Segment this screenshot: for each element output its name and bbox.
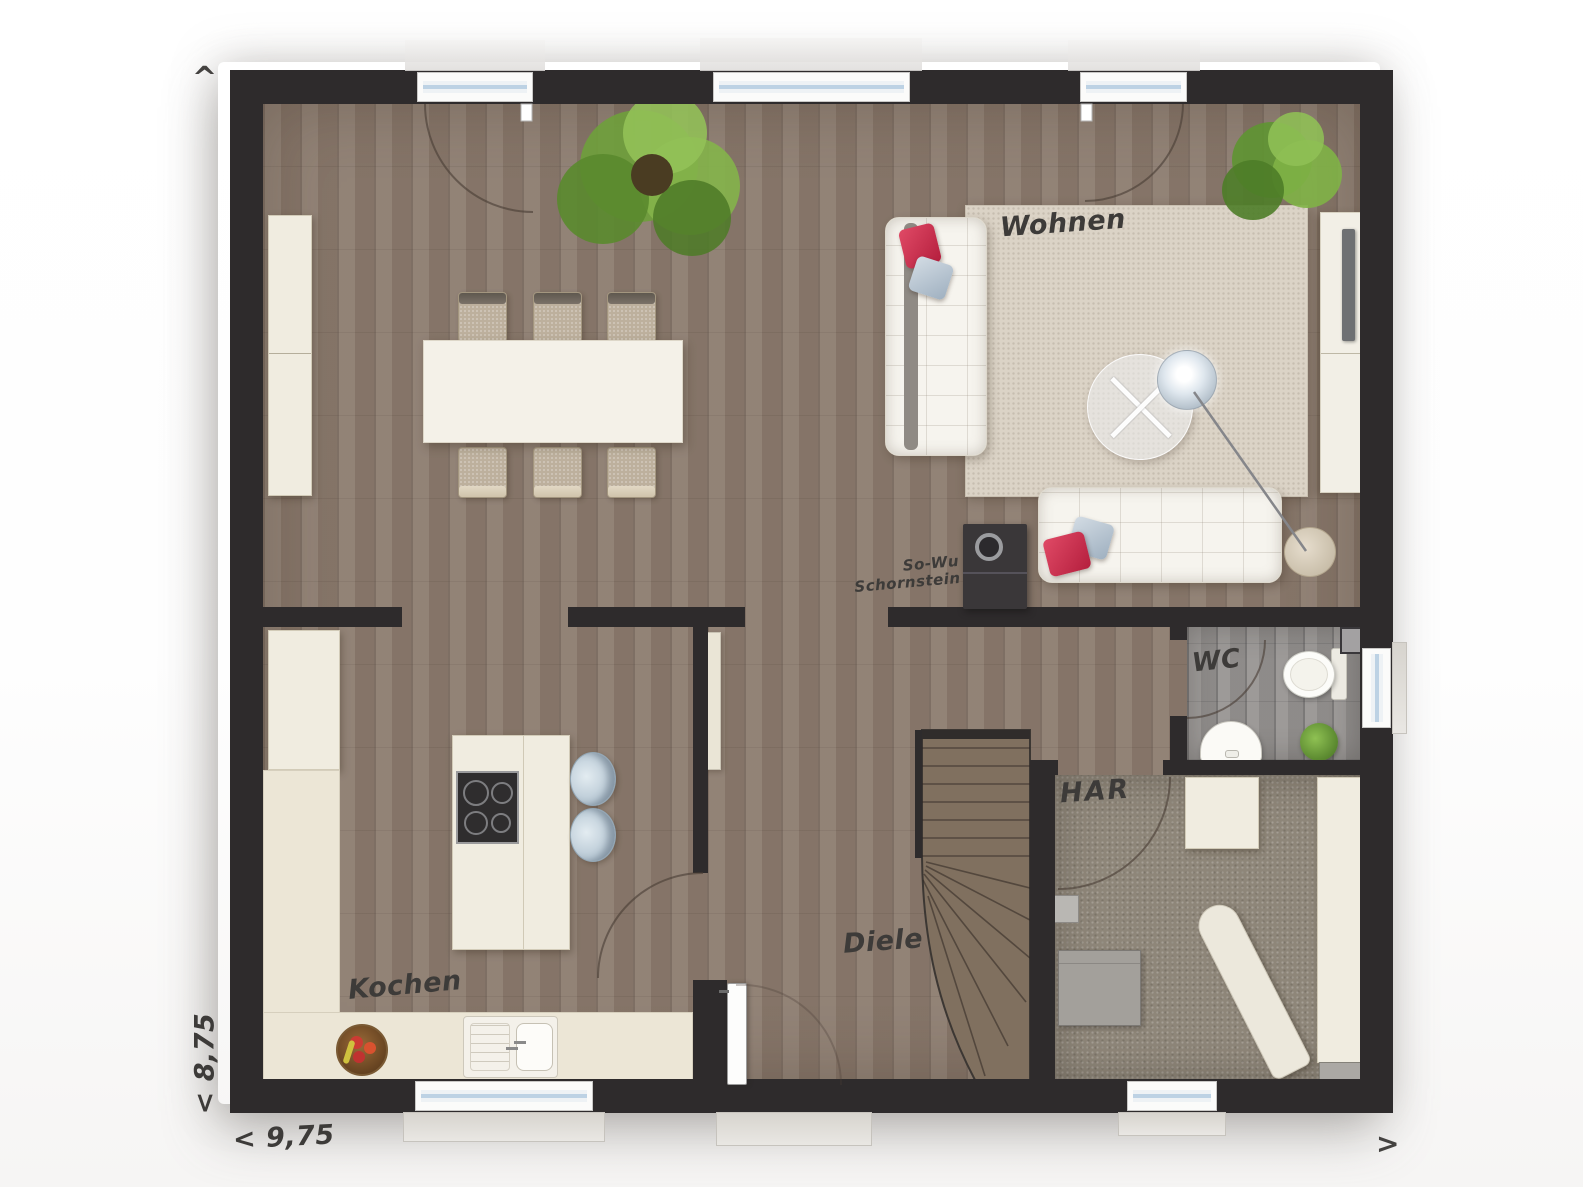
dining-chair bbox=[533, 292, 582, 343]
wall-outer-right bbox=[1360, 70, 1393, 1113]
stair-stringer bbox=[915, 730, 922, 858]
wall-har-left bbox=[1030, 760, 1055, 1080]
wall-outer-left bbox=[230, 70, 263, 1113]
room-label-diele: Diele bbox=[842, 923, 924, 960]
front-door-leaf bbox=[727, 983, 747, 1085]
wall-dining-kitchen bbox=[263, 607, 402, 627]
kitchen-island bbox=[452, 735, 570, 950]
sofa-vertical bbox=[885, 217, 987, 456]
floor-lamp-globe bbox=[1157, 350, 1217, 410]
dining-chair bbox=[458, 447, 507, 498]
window-apron bbox=[405, 40, 545, 71]
dining-sideboard bbox=[268, 215, 312, 496]
dimension-depth: < 8,75 bbox=[190, 1004, 221, 1124]
har-wall-niche bbox=[1052, 895, 1079, 923]
chimney-stove bbox=[963, 524, 1027, 609]
window-apron bbox=[1068, 40, 1200, 71]
fruit-bowl bbox=[336, 1024, 388, 1076]
kitchen-window bbox=[415, 1081, 593, 1111]
dining-table bbox=[423, 340, 683, 443]
island-divider bbox=[523, 736, 524, 949]
room-label-har: HAR bbox=[1059, 774, 1131, 810]
wall-mid bbox=[568, 607, 745, 627]
bar-stool bbox=[570, 752, 616, 806]
washing-machine bbox=[1058, 950, 1141, 1026]
wc-plant bbox=[1300, 723, 1338, 761]
wall-outer-bottom bbox=[230, 1079, 1393, 1113]
kitchen-counter-left bbox=[263, 770, 340, 1013]
har-window bbox=[1127, 1081, 1217, 1111]
floor-lamp-base bbox=[1284, 527, 1336, 577]
door-handle bbox=[719, 990, 729, 993]
north-arrow: ^ bbox=[192, 64, 217, 94]
sideboard-divider bbox=[269, 353, 311, 354]
wall-wc-har bbox=[1163, 760, 1360, 775]
sink-basin bbox=[516, 1023, 553, 1071]
bar-stool bbox=[570, 808, 616, 862]
wall-wohnen-south bbox=[888, 607, 1360, 627]
har-window-sill bbox=[1118, 1112, 1226, 1136]
wall-kitchen-diele-lower bbox=[693, 980, 727, 1080]
sink-faucet bbox=[506, 1047, 518, 1050]
wall-wc-left-lower bbox=[1170, 716, 1187, 760]
sink-drainboard bbox=[470, 1023, 510, 1071]
cooktop bbox=[456, 771, 519, 844]
dining-chair bbox=[533, 447, 582, 498]
floorplan-screenshot: Wohnen Kochen Diele WC HAR So-Wu Schorns… bbox=[0, 0, 1583, 1187]
fixed-window bbox=[713, 72, 910, 102]
dining-chair bbox=[607, 292, 656, 343]
sofa-horizontal bbox=[1038, 487, 1282, 583]
kitchen-tall-cabinet bbox=[268, 630, 340, 770]
dining-chair bbox=[458, 292, 507, 343]
wohnen-plant bbox=[1220, 112, 1345, 234]
tv-sideboard bbox=[1320, 212, 1365, 493]
har-cabinet-right bbox=[1317, 777, 1365, 1063]
toilet bbox=[1283, 651, 1335, 698]
dining-chair bbox=[607, 447, 656, 498]
wall-wc-left-stub bbox=[1170, 627, 1187, 640]
red-pillow bbox=[1042, 530, 1092, 577]
terrace-door-window-1 bbox=[417, 72, 533, 102]
har-cabinet-top bbox=[1185, 777, 1259, 849]
entrance-stoop bbox=[716, 1112, 872, 1146]
tv-screen bbox=[1342, 229, 1355, 341]
kitchen-sink bbox=[463, 1016, 558, 1078]
terrace-door-window-2 bbox=[1080, 72, 1187, 102]
window-apron bbox=[700, 38, 922, 71]
kitchen-window-sill bbox=[403, 1112, 605, 1142]
dining-plant bbox=[555, 92, 755, 270]
dimension-width: < 9,75 bbox=[232, 1119, 335, 1155]
room-label-wc: WC bbox=[1191, 644, 1243, 679]
wc-window-sill bbox=[1392, 642, 1407, 734]
wc-window bbox=[1362, 648, 1391, 728]
east-arrow: > bbox=[1376, 1130, 1399, 1158]
wall-kitchen-diele-upper bbox=[693, 627, 708, 873]
